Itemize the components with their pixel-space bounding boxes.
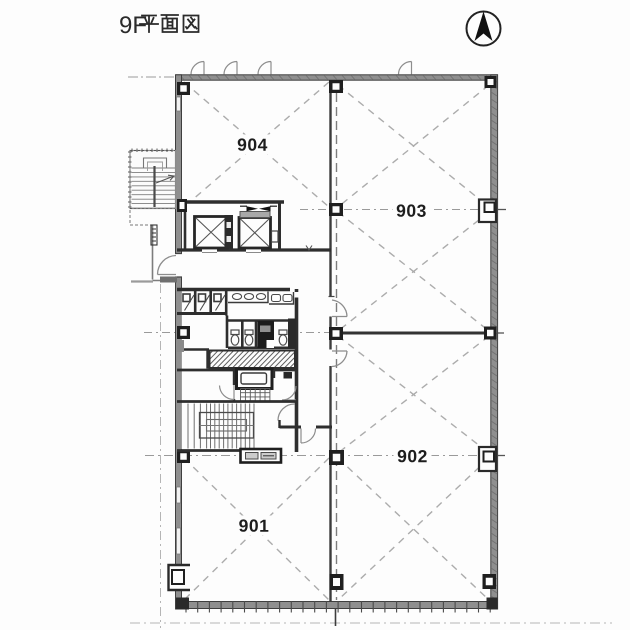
svg-text:904: 904 — [237, 135, 268, 155]
svg-text:903: 903 — [396, 201, 427, 221]
svg-text:902: 902 — [397, 446, 428, 466]
svg-text:901: 901 — [239, 516, 270, 536]
